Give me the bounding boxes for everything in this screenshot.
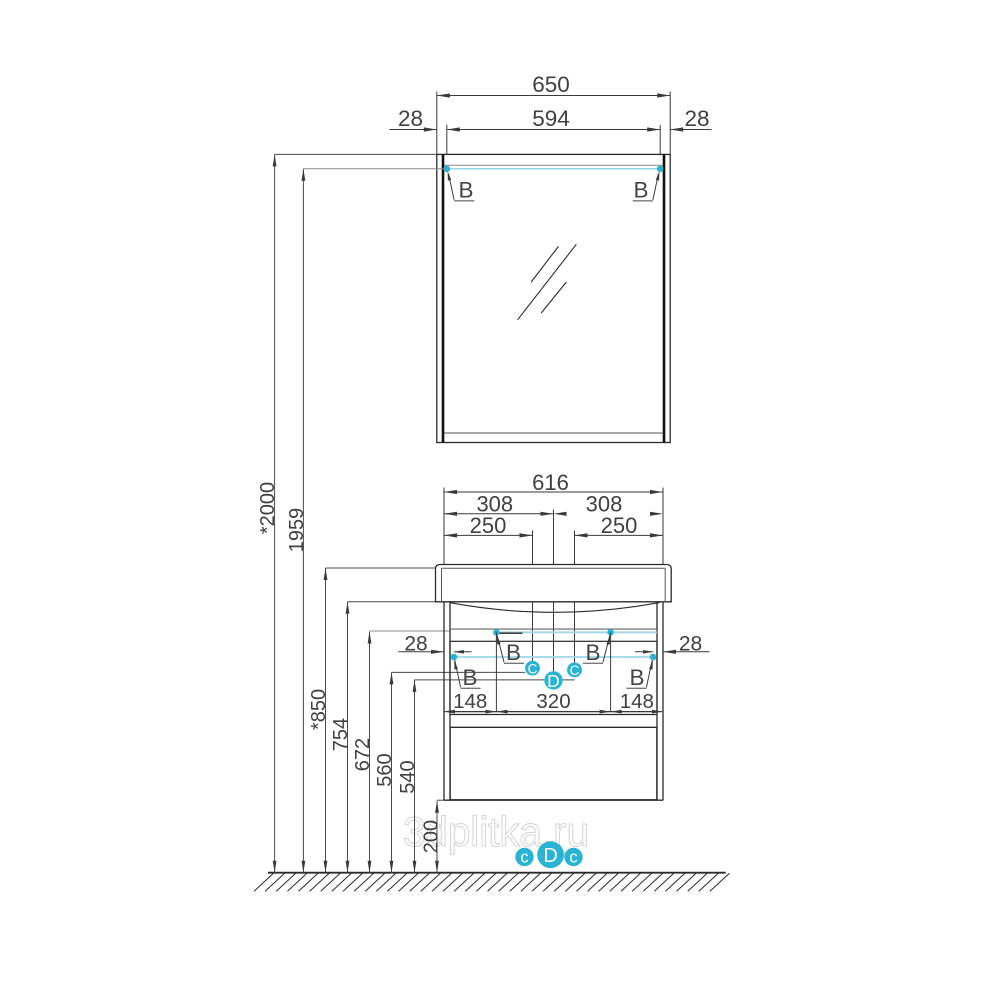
- svg-text:28: 28: [679, 633, 702, 656]
- svg-text:B: B: [458, 177, 473, 202]
- svg-text:c: c: [569, 849, 577, 867]
- svg-text:c: c: [520, 849, 528, 867]
- svg-text:672: 672: [352, 738, 374, 771]
- svg-text:*2000: *2000: [257, 482, 279, 534]
- svg-text:250: 250: [470, 513, 507, 538]
- svg-text:616: 616: [532, 470, 569, 495]
- svg-text:D: D: [543, 845, 557, 867]
- svg-text:*850: *850: [308, 689, 330, 730]
- svg-text:250: 250: [601, 513, 638, 538]
- svg-text:594: 594: [532, 106, 570, 131]
- svg-text:28: 28: [398, 106, 423, 131]
- svg-text:540: 540: [397, 760, 419, 793]
- svg-text:754: 754: [330, 718, 352, 751]
- svg-text:B: B: [633, 177, 648, 202]
- svg-text:320: 320: [536, 690, 570, 713]
- svg-text:B: B: [585, 640, 600, 665]
- svg-text:560: 560: [374, 753, 396, 786]
- svg-text:D: D: [547, 671, 560, 691]
- svg-text:1959: 1959: [286, 508, 308, 553]
- svg-text:200: 200: [420, 820, 442, 853]
- svg-text:650: 650: [532, 72, 570, 97]
- svg-text:B: B: [629, 665, 644, 690]
- svg-text:B: B: [506, 640, 521, 665]
- svg-text:28: 28: [684, 106, 709, 131]
- svg-text:28: 28: [404, 633, 427, 656]
- svg-text:C: C: [570, 663, 580, 678]
- svg-text:C: C: [528, 661, 538, 676]
- svg-text:148: 148: [620, 690, 654, 713]
- svg-text:148: 148: [453, 690, 487, 713]
- svg-text:B: B: [462, 665, 477, 690]
